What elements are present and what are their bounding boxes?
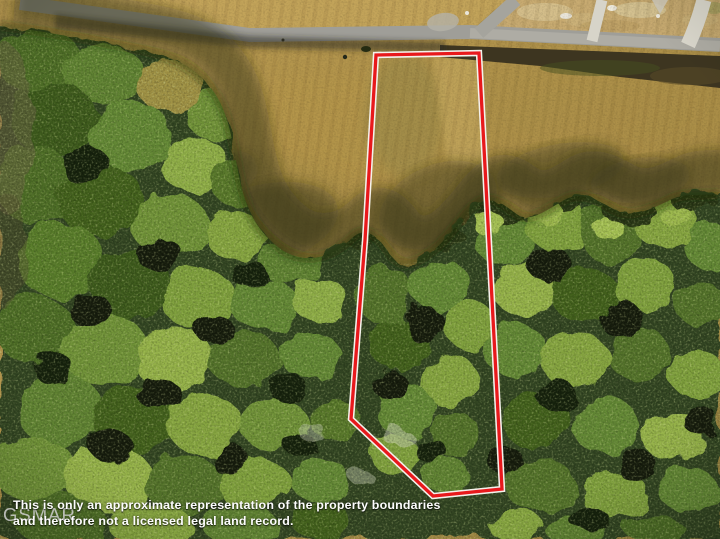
disclaimer-text: This is only an approximate representati… [13,498,441,529]
disclaimer-line1: This is only an approximate representati… [13,498,441,514]
aerial-photo: GSMAR This is only an approximate repres… [0,0,720,539]
aerial-photo-canvas [0,0,720,539]
disclaimer-line2: and therefore not a licensed legal land … [13,514,441,530]
